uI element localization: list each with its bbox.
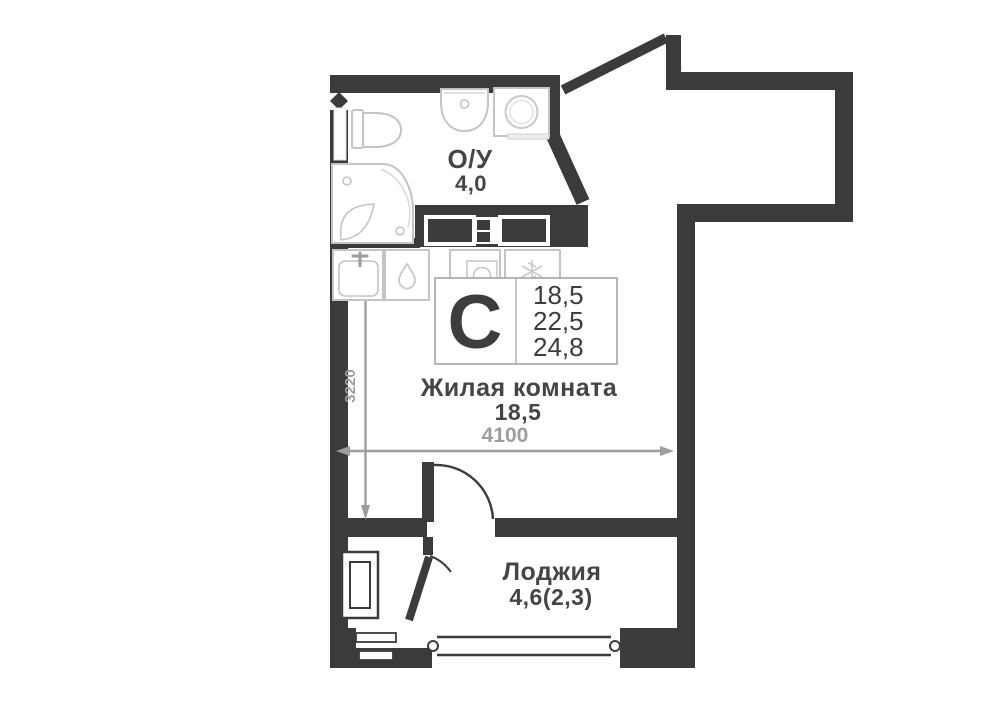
- basin-body: [441, 89, 488, 131]
- toilet-bowl: [363, 113, 401, 147]
- dimension-arrow-icon: [361, 505, 370, 520]
- loggia-door-swing-icon: [430, 556, 451, 572]
- living-room-label: Жилая комната: [420, 374, 618, 402]
- radiator-bottom: [359, 651, 393, 660]
- wall-hall-right: [835, 72, 853, 222]
- bathroom-door-panels: [424, 215, 550, 246]
- toilet-tank: [352, 110, 363, 148]
- bathroom-area: 4,0: [455, 171, 487, 196]
- living-room-area: 18,5: [495, 399, 542, 425]
- washing-machine: [494, 88, 549, 139]
- dimension-width-value: 4100: [482, 424, 529, 447]
- wall-hall-top: [666, 72, 853, 90]
- wall-loggia-left: [348, 518, 427, 537]
- floor-plan: 4100 3220 С 18,5 22,5 24,8 О/У 4,0 Жилая…: [0, 0, 1000, 707]
- vent-shaft: [334, 108, 346, 160]
- dishwasher-cabinet: [385, 250, 429, 300]
- unit-type-letter: С: [448, 280, 503, 365]
- dimension-height-value: 3220: [342, 369, 359, 402]
- loggia-label: Лоджия: [502, 558, 601, 586]
- unit-card: С 18,5 22,5 24,8: [435, 278, 617, 365]
- wash-basin: [441, 89, 488, 131]
- floor-plan-svg: 4100 3220 С 18,5 22,5 24,8 О/У 4,0 Жилая…: [0, 0, 1000, 707]
- basin-drain-icon: [461, 100, 469, 108]
- wall-bottom-right-block: [620, 628, 695, 668]
- bench-inner: [350, 562, 370, 608]
- wall-hall-bottom: [677, 204, 853, 222]
- balcony-door-swing-icon: [434, 465, 493, 519]
- washer-base: [508, 134, 549, 139]
- toilet: [352, 110, 401, 148]
- wall-right-main: [677, 204, 695, 655]
- radiator: [356, 633, 396, 660]
- kitchen-sink-basin: [339, 261, 378, 296]
- loggia-door-leaf: [409, 557, 429, 620]
- loggia-bench: [342, 552, 378, 618]
- door-track-bottom: [477, 232, 490, 242]
- wall-bathroom-diagonal: [553, 136, 583, 202]
- door-track-top: [477, 220, 490, 230]
- loggia-glazing-icon: [428, 637, 620, 655]
- unit-area-total-with-loggia: 24,8: [533, 332, 584, 362]
- bathroom-label: О/У: [447, 144, 492, 174]
- loggia-area: 4,6(2,3): [509, 584, 592, 610]
- shower-cabin: [332, 164, 413, 243]
- kitchen-sink-cabinet: [333, 250, 383, 300]
- shower-hinge-bottom-icon: [396, 227, 404, 235]
- balcony-door-leaf: [422, 462, 434, 522]
- shower-hinge-top-icon: [343, 177, 351, 185]
- entrance-door-leaf: [563, 38, 666, 90]
- dimension-arrow-icon: [660, 446, 674, 456]
- wall-loggia-jamb: [423, 537, 433, 555]
- door-panel-left: [428, 219, 472, 242]
- wall-loggia-right: [495, 518, 677, 537]
- door-panel-right: [502, 219, 546, 242]
- radiator-top: [356, 633, 396, 642]
